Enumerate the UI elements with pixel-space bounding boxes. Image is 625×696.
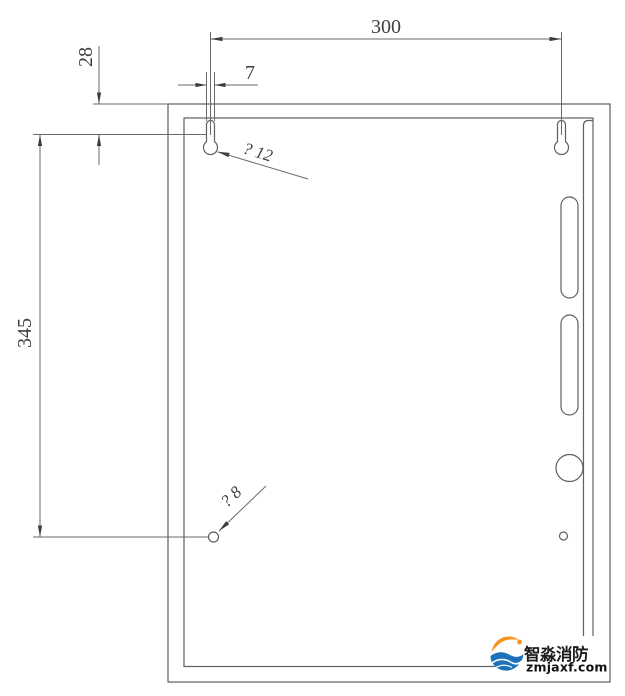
- knockout-hole: [556, 455, 583, 482]
- dimension-value-28: 28: [75, 47, 97, 67]
- side-slot-lower: [561, 315, 578, 415]
- arrowhead-left: [196, 83, 207, 87]
- dimension-value-7: 7: [245, 62, 255, 84]
- mount-hole-bottom: [209, 532, 219, 542]
- arrowhead-left: [211, 37, 223, 41]
- watermark-logo: 智淼消防 zmjaxf.com: [491, 636, 608, 675]
- panel-outer-outline: [168, 104, 610, 682]
- dimension-value-345: 345: [14, 318, 36, 348]
- leader-label-dia8: ? 8: [217, 482, 246, 511]
- panel-inner-outline: [184, 118, 593, 667]
- logo-website-text: zmjaxf.com: [526, 660, 608, 675]
- arrowhead-right: [215, 83, 226, 87]
- dimension-345: 345: [14, 135, 209, 538]
- arrowhead-down: [97, 93, 101, 105]
- logo-icon: [491, 637, 524, 672]
- arrowhead-up: [38, 135, 42, 147]
- leader-bottom-hole-diameter: ? 8: [217, 482, 266, 531]
- arrowhead-down: [38, 526, 42, 538]
- logo-orange-dot: [517, 640, 522, 645]
- arrowhead-up: [97, 135, 101, 147]
- door-edge-crease-line: [584, 121, 594, 660]
- dimension-value-300: 300: [371, 16, 401, 38]
- leader-keyhole-diameter: ? 12: [218, 139, 309, 179]
- drawing-canvas: 300 7 28 345: [0, 0, 625, 696]
- panel-dimension-drawing: 300 7 28 345: [0, 0, 625, 696]
- leader-label-dia12: ? 12: [241, 139, 275, 166]
- dimension-28: 28: [33, 46, 207, 165]
- dimension-7: 7: [178, 62, 258, 121]
- side-slot-upper: [561, 197, 578, 298]
- leader-arrowhead: [218, 152, 230, 157]
- cabinet-outline: [168, 104, 610, 682]
- dimension-300: 300: [211, 16, 562, 135]
- arrowhead-right: [550, 37, 562, 41]
- small-hole-right: [560, 532, 568, 540]
